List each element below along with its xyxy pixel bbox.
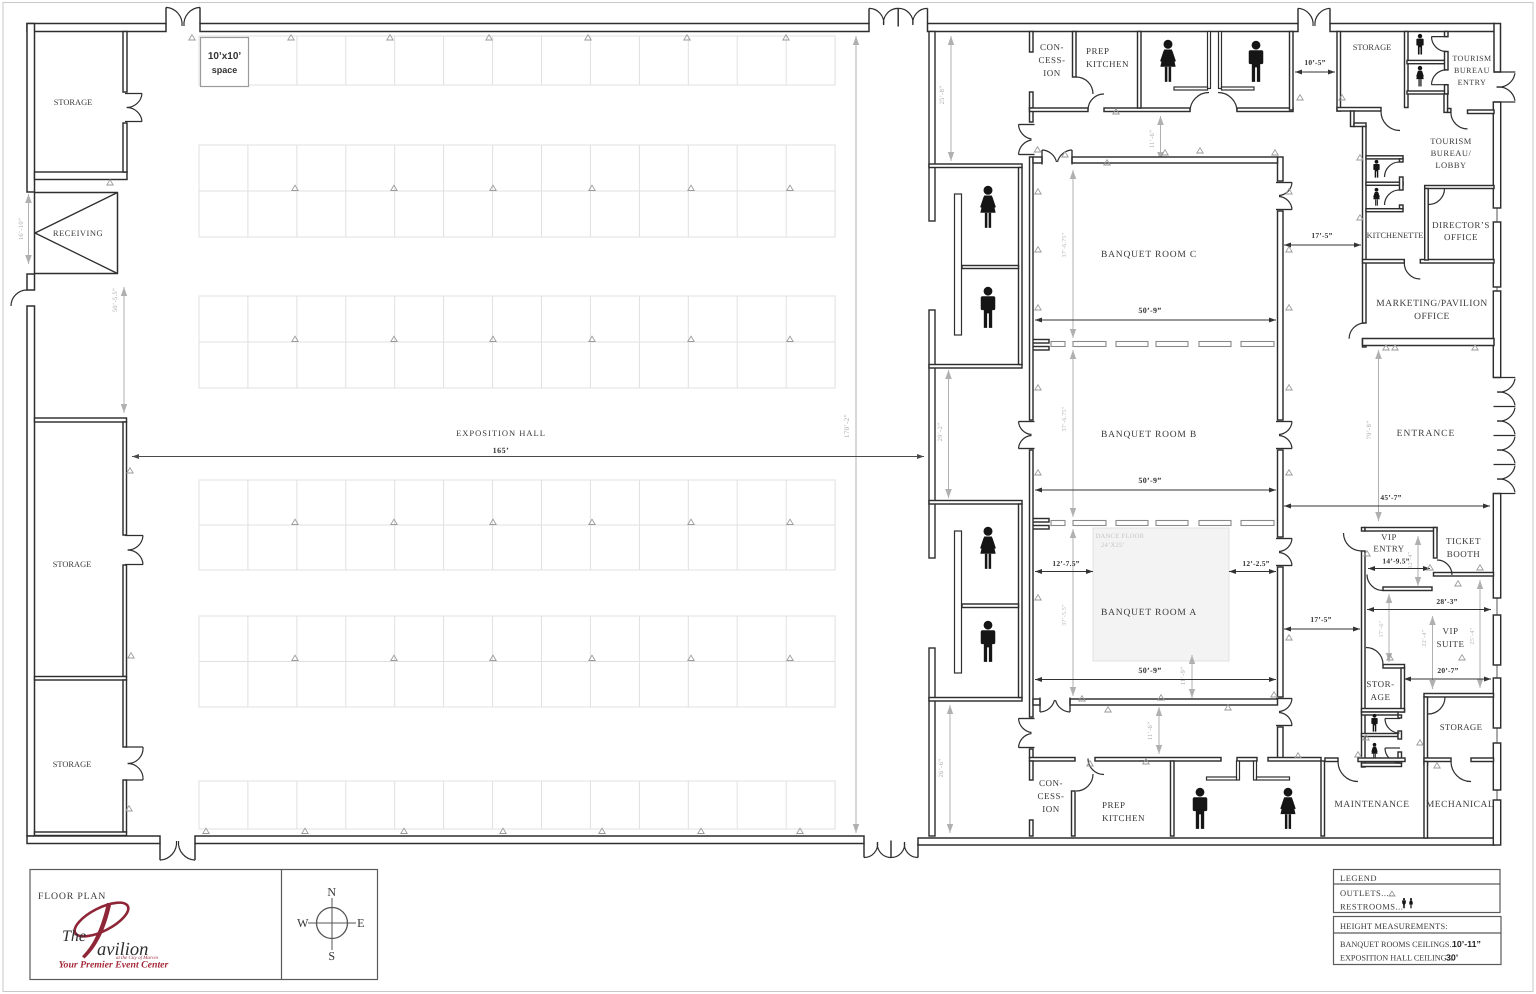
svg-text:S: S xyxy=(328,949,335,963)
svg-text:STORAGE: STORAGE xyxy=(1353,43,1391,52)
svg-text:50’-9”: 50’-9” xyxy=(1138,306,1161,315)
svg-text:STORAGE: STORAGE xyxy=(53,560,91,569)
svg-text:37’-6.75”: 37’-6.75” xyxy=(1062,406,1068,431)
svg-text:VIP: VIP xyxy=(1442,626,1458,636)
svg-text:BANQUET ROOM A: BANQUET ROOM A xyxy=(1101,608,1197,618)
svg-text:TOURISM: TOURISM xyxy=(1430,136,1472,146)
svg-text:FLOOR PLAN: FLOOR PLAN xyxy=(38,891,106,902)
svg-text:E: E xyxy=(357,916,365,930)
svg-text:PREP: PREP xyxy=(1102,800,1126,810)
svg-text:37’-5.5”: 37’-5.5” xyxy=(1062,604,1068,626)
svg-text:CESS-: CESS- xyxy=(1037,791,1064,801)
svg-text:11’-9”: 11’-9” xyxy=(1180,667,1187,686)
svg-text:DANCE FLOOR: DANCE FLOOR xyxy=(1096,533,1145,540)
svg-text:26’-6”: 26’-6” xyxy=(938,759,945,778)
svg-text:ENTRANCE: ENTRANCE xyxy=(1397,429,1456,439)
svg-text:MAINTENANCE: MAINTENANCE xyxy=(1334,800,1409,810)
svg-text:DIRECTOR’S: DIRECTOR’S xyxy=(1432,220,1490,230)
svg-text:ENTRY: ENTRY xyxy=(1373,544,1404,554)
svg-text:RECEIVING: RECEIVING xyxy=(53,228,103,238)
svg-text:50’-9”: 50’-9” xyxy=(1138,666,1161,675)
svg-text:CESS-: CESS- xyxy=(1038,55,1065,65)
svg-text:50’-9”: 50’-9” xyxy=(1138,476,1161,485)
svg-text:TICKET: TICKET xyxy=(1446,536,1481,546)
svg-text:LEGEND: LEGEND xyxy=(1340,873,1377,883)
svg-text:space: space xyxy=(212,65,238,75)
svg-text:STORAGE: STORAGE xyxy=(1440,722,1483,732)
svg-text:PREP: PREP xyxy=(1086,46,1110,56)
svg-text:RESTROOMS...: RESTROOMS... xyxy=(1340,902,1403,912)
svg-text:37’-6.75”: 37’-6.75” xyxy=(1062,232,1068,257)
svg-text:Your Premier Event Center: Your Premier Event Center xyxy=(59,960,169,971)
svg-text:The: The xyxy=(62,928,86,945)
svg-text:165’: 165’ xyxy=(493,446,510,455)
svg-text:BUREAU/: BUREAU/ xyxy=(1431,148,1472,158)
svg-text:MECHANICAL: MECHANICAL xyxy=(1426,800,1494,810)
svg-text:OFFICE: OFFICE xyxy=(1444,232,1478,242)
svg-text:12’-2.5”: 12’-2.5” xyxy=(1242,559,1269,568)
svg-text:16’-10”: 16’-10” xyxy=(18,218,25,240)
svg-text:17’-5”: 17’-5” xyxy=(1311,231,1332,240)
svg-text:W: W xyxy=(297,916,309,930)
svg-text:BANQUET ROOM B: BANQUET ROOM B xyxy=(1101,430,1197,440)
svg-text:79’-8”: 79’-8” xyxy=(1366,421,1373,440)
svg-text:SUITE: SUITE xyxy=(1437,639,1465,649)
svg-text:VIP: VIP xyxy=(1381,532,1397,542)
svg-text:BANQUET ROOMS CEILINGS...: BANQUET ROOMS CEILINGS... xyxy=(1340,940,1456,949)
svg-text:22’-4”: 22’-4” xyxy=(1422,629,1428,646)
svg-text:ENTRY: ENTRY xyxy=(1458,78,1487,87)
svg-text:10’-11”: 10’-11” xyxy=(1452,939,1481,949)
svg-text:11’-6”: 11’-6” xyxy=(1149,130,1156,149)
svg-text:29’-2”: 29’-2” xyxy=(937,423,944,442)
svg-text:12’-7.5”: 12’-7.5” xyxy=(1052,559,1079,568)
svg-text:17’-6”: 17’-6” xyxy=(1379,620,1385,637)
svg-text:BUREAU: BUREAU xyxy=(1454,66,1490,75)
svg-text:25’-4”: 25’-4” xyxy=(1470,627,1476,644)
svg-text:EXPOSITION HALL CEILING...: EXPOSITION HALL CEILING... xyxy=(1340,954,1453,963)
svg-text:HEIGHT MEASUREMENTS:: HEIGHT MEASUREMENTS: xyxy=(1340,922,1448,931)
svg-text:45’-7”: 45’-7” xyxy=(1380,493,1401,502)
svg-text:EXPOSITION HALL: EXPOSITION HALL xyxy=(456,428,546,438)
svg-text:10’-5”: 10’-5” xyxy=(1304,58,1325,67)
svg-text:ION: ION xyxy=(1043,68,1061,78)
svg-text:OFFICE: OFFICE xyxy=(1414,312,1450,322)
svg-text:N: N xyxy=(327,885,336,899)
svg-text:KITCHENETTE: KITCHENETTE xyxy=(1367,231,1424,240)
svg-text:STORAGE: STORAGE xyxy=(54,98,92,107)
svg-text:KITCHEN: KITCHEN xyxy=(1102,813,1145,823)
svg-text:24’X25’: 24’X25’ xyxy=(1101,542,1125,549)
svg-text:LOBBY: LOBBY xyxy=(1435,160,1466,170)
svg-text:CON-: CON- xyxy=(1040,42,1064,52)
svg-text:50’-5.5”: 50’-5.5” xyxy=(112,288,119,312)
svg-text:BANQUET ROOM C: BANQUET ROOM C xyxy=(1101,250,1197,260)
svg-text:AGE: AGE xyxy=(1371,692,1391,702)
svg-text:25’-8”: 25’-8” xyxy=(939,86,946,105)
svg-text:20’-7”: 20’-7” xyxy=(1437,666,1458,675)
svg-text:11’-6”: 11’-6” xyxy=(1147,722,1154,741)
svg-text:STORAGE: STORAGE xyxy=(53,760,91,769)
svg-text:TOURISM: TOURISM xyxy=(1452,54,1491,63)
svg-text:17’-5”: 17’-5” xyxy=(1310,615,1331,624)
svg-text:OUTLETS.....: OUTLETS..... xyxy=(1340,888,1394,898)
svg-text:MARKETING/PAVILION: MARKETING/PAVILION xyxy=(1376,299,1487,309)
svg-text:STOR-: STOR- xyxy=(1366,679,1394,689)
svg-text:14’-9.5”: 14’-9.5” xyxy=(1382,557,1409,566)
svg-text:10’x10’: 10’x10’ xyxy=(208,51,242,62)
svg-text:28’-3”: 28’-3” xyxy=(1436,597,1457,606)
svg-text:CON-: CON- xyxy=(1039,778,1063,788)
svg-text:170’-2”: 170’-2” xyxy=(843,414,851,438)
svg-text:KITCHEN: KITCHEN xyxy=(1086,59,1129,69)
svg-text:30’: 30’ xyxy=(1446,953,1458,963)
svg-text:ION: ION xyxy=(1042,804,1060,814)
svg-text:BOOTH: BOOTH xyxy=(1447,549,1481,559)
